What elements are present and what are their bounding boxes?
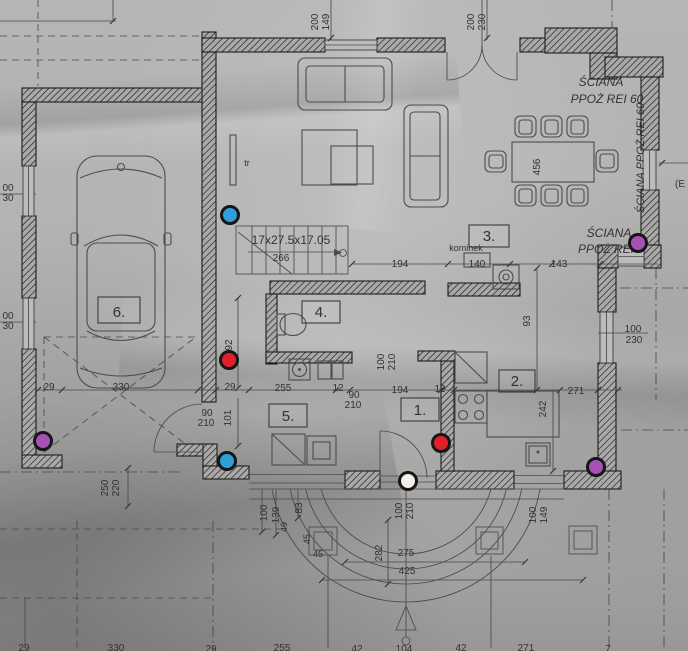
dot-red-2[interactable] <box>433 435 450 452</box>
dim-label: 100 <box>394 502 405 519</box>
dim-label: 45 <box>313 549 323 559</box>
bath-fixtures <box>318 361 343 379</box>
dim-label: 139 <box>271 506 282 523</box>
dim-label: (E <box>675 179 685 190</box>
dim-label: 12 <box>434 384 446 395</box>
dim-label: 255 <box>275 383 292 394</box>
dim-label: 100 <box>625 324 642 335</box>
dim-label: 456 <box>532 158 543 175</box>
text-labels-layer: 200149200230ŚCIANAPPOŻ REI 60ŚCIANA PPOŻ… <box>2 13 685 651</box>
dim-label: 12 <box>332 383 344 394</box>
dim-label: 42 <box>455 643 467 651</box>
coffee-table <box>302 130 373 185</box>
dim-label: 330 <box>113 382 130 393</box>
room-number: 1. <box>414 402 427 419</box>
sofa-small <box>404 105 448 207</box>
dot-white-1[interactable] <box>400 473 417 490</box>
dim-label: ŚCIANA <box>579 74 624 89</box>
dim-label: kominek <box>449 243 483 253</box>
dim-label: 29 <box>43 382 55 393</box>
dim-label: 230 <box>626 335 643 346</box>
dim-label: 250 <box>100 479 111 496</box>
dim-label: 29 <box>205 644 217 651</box>
dim-label: 282 <box>374 544 385 561</box>
car <box>71 156 171 388</box>
dim-label: 220 <box>111 479 122 496</box>
dim-label: 242 <box>538 400 549 417</box>
room-number: 6. <box>113 304 126 321</box>
dim-label: 17x27.5x17.05 <box>252 233 331 247</box>
dot-red-1[interactable] <box>221 352 238 369</box>
dim-label: 330 <box>108 643 125 651</box>
dim-label: 100 <box>259 504 270 521</box>
dim-label: 210 <box>405 502 416 519</box>
dim-label: 104 <box>396 644 413 651</box>
dim-label: 271 <box>568 386 585 397</box>
dim-label: 93 <box>522 315 533 327</box>
dim-label: ŚCIANA PPOŻ REI 60 <box>634 102 647 213</box>
dim-label: 42 <box>351 644 363 651</box>
dim-label: 271 <box>518 643 535 651</box>
dim-label: 425 <box>399 566 416 577</box>
dim-label: 143 <box>551 259 568 270</box>
dim-label: 210 <box>198 418 215 429</box>
dim-label: 100 <box>376 353 387 370</box>
dim-label: 266 <box>273 253 290 264</box>
dim-label: 140 <box>469 259 486 270</box>
dot-blue-1[interactable] <box>222 207 239 224</box>
floor-plan-drawing: 6.5.4.3.1.2. 200149200230ŚCIANAPPOŻ REI … <box>0 0 688 651</box>
dot-purple-1[interactable] <box>630 235 647 252</box>
dining-table-set <box>485 116 618 206</box>
dim-label: 49 <box>279 522 289 532</box>
dim-label: 7 <box>605 644 611 651</box>
room-number: 5. <box>282 408 295 425</box>
dim-label: 45 <box>302 534 312 544</box>
dim-label: 255 <box>274 643 291 651</box>
annotation-dots-layer <box>35 207 647 490</box>
dim-label: 100 <box>528 506 539 523</box>
dim-label: 92 <box>224 339 235 351</box>
dim-label: 149 <box>321 13 332 30</box>
dim-label: 29 <box>224 382 236 393</box>
dim-label: 210 <box>387 353 398 370</box>
dim-label: ŚCIANA <box>587 225 632 240</box>
room-number: 2. <box>511 373 524 390</box>
dim-label: 30 <box>2 321 14 332</box>
dim-label: 30 <box>2 193 14 204</box>
room-labels-layer: 6.5.4.3.1.2. <box>98 225 535 427</box>
hall-cabinets <box>272 434 336 465</box>
dot-purple-2[interactable] <box>35 433 52 450</box>
dim-label: 210 <box>345 400 362 411</box>
dim-label: 230 <box>477 13 488 30</box>
radiator <box>230 135 236 185</box>
dim-label: PPOŻ REI 60 <box>571 92 644 106</box>
dim-label: 101 <box>223 409 234 426</box>
dim-label: 194 <box>392 385 409 396</box>
floorplan-photo: 6.5.4.3.1.2. 200149200230ŚCIANAPPOŻ REI … <box>0 0 688 651</box>
dim-label: 83 <box>294 502 305 514</box>
dim-label: tr <box>244 158 250 168</box>
dot-blue-2[interactable] <box>219 453 236 470</box>
dim-label: 194 <box>392 259 409 270</box>
dim-label: 149 <box>539 506 550 523</box>
room-number: 4. <box>315 304 328 321</box>
dim-label: 29 <box>18 643 30 651</box>
entrance-porch <box>249 330 597 645</box>
room-number: 3. <box>483 228 496 245</box>
dot-purple-3[interactable] <box>588 459 605 476</box>
dim-label: 200 <box>310 13 321 30</box>
dim-label: 275 <box>398 548 415 559</box>
sofa-large <box>298 58 392 110</box>
dim-label: PPOŻ REI <box>578 242 635 256</box>
dim-label: 200 <box>466 13 477 30</box>
driveway-markings <box>44 337 196 452</box>
